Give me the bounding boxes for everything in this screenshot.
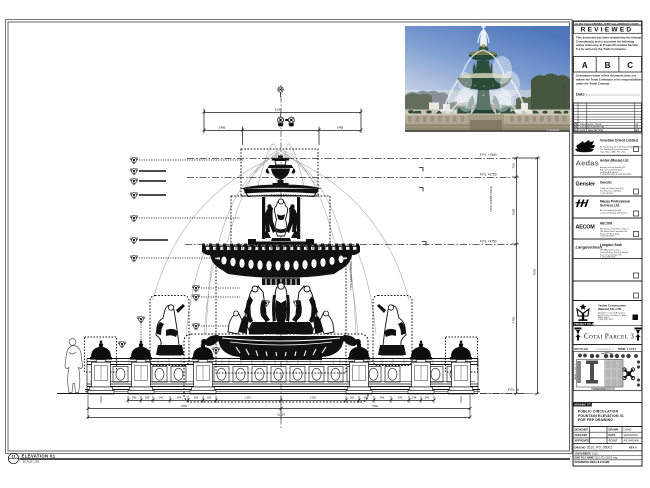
svg-text:3100: 3100 (275, 108, 282, 112)
svg-text:1302: 1302 (310, 396, 316, 400)
svg-text:240: 240 (132, 396, 137, 400)
svg-text:340: 340 (159, 396, 164, 400)
svg-text:AECOM: AECOM (600, 222, 612, 226)
svg-text:5110: 5110 (592, 451, 598, 455)
svg-text:296: 296 (364, 396, 369, 400)
svg-text:260: 260 (350, 396, 355, 400)
svg-text:1302: 1302 (245, 396, 251, 400)
svg-text:AECOM: AECOM (576, 225, 596, 231)
svg-text:364: 364 (177, 396, 182, 400)
svg-text:CAND: CAND (624, 427, 632, 431)
svg-text:T +853 2878 3839 F +853 2878: T +853 2878 3839 F +853 2878 3842 (600, 174, 631, 176)
svg-text:750: 750 (512, 163, 516, 168)
svg-text:C: C (627, 61, 633, 70)
svg-text:FIRST ISSUE: FIRST ISSUE (588, 124, 602, 126)
svg-text:F.P.L ±0: F.P.L ±0 (508, 388, 519, 392)
svg-text:COTAI PARCEL 3: COTAI PARCEL 3 (584, 333, 634, 341)
svg-text:COTAI PARCEL 3: COTAI PARCEL 3 (596, 348, 614, 351)
svg-text:© concorde: © concorde (546, 128, 560, 132)
svg-text:DATE: DATE (609, 433, 616, 437)
svg-text:1485: 1485 (337, 126, 344, 130)
svg-text:Langdon Seah: Langdon Seah (600, 243, 622, 247)
svg-text:(Macau) CO.,LTD.: (Macau) CO.,LTD. (598, 307, 622, 311)
svg-text:under the Trade Contract.: under the Trade Contract. (576, 81, 610, 85)
svg-text:TYPE 'FD05C' POWDER COATED: TYPE 'FD05C' POWDER COATED (349, 249, 353, 290)
svg-text:A: A (582, 61, 588, 70)
svg-text:Aedas (Macau) Ltd.: Aedas (Macau) Ltd. (600, 159, 629, 163)
svg-text:INIT: INIT (635, 130, 640, 132)
svg-text:Venetian Orient Limited: Venetian Orient Limited (600, 139, 638, 143)
svg-text:LangdonSeah: LangdonSeah (576, 245, 603, 250)
svg-text:KEY PLAN: KEY PLAN (575, 347, 588, 351)
svg-text:T 415.433.3700: T 415.433.3700 (600, 193, 613, 195)
svg-text:REV 0: REV 0 (629, 445, 637, 449)
svg-text:Gensler: Gensler (576, 182, 596, 188)
svg-text:JOB NUMBER: JOB NUMBER (575, 452, 591, 455)
svg-text:DRAWN: DRAWN (609, 427, 619, 431)
svg-text:7500: 7500 (533, 268, 537, 275)
svg-text:SCALE: SCALE (609, 439, 618, 443)
svg-text:248: 248 (412, 396, 417, 400)
svg-text:DWG FILE NAME 5110_PD_05001.dw: DWG FILE NAME 5110_PD_05001.dwg (575, 457, 619, 460)
svg-text:DESCRIPTION: DESCRIPTION (588, 130, 603, 132)
svg-text:Date :: Date : (576, 92, 587, 97)
svg-text:DESIGNED: DESIGNED (575, 427, 589, 431)
svg-text:1485: 1485 (219, 126, 226, 130)
svg-text:REFERENCE DWG FILE NAME: REFERENCE DWG FILE NAME (575, 461, 610, 464)
svg-text:12/04/2016: 12/04/2016 (624, 433, 638, 437)
svg-text:296: 296 (194, 396, 199, 400)
svg-text:DWG NO: DWG NO (575, 445, 586, 449)
svg-text:AS SHOWN: AS SHOWN (624, 439, 639, 443)
svg-text:F.P.L +7500: F.P.L +7500 (480, 153, 497, 157)
svg-text:240: 240 (425, 396, 430, 400)
svg-text:China Law Building 21/F, Macau: China Law Building 21/F, Macau (600, 212, 627, 214)
svg-text:Aedas: Aedas (576, 159, 600, 168)
svg-text:340: 340 (398, 396, 403, 400)
svg-text:B: B (605, 61, 611, 70)
svg-text:Gensler: Gensler (600, 181, 613, 185)
svg-text:REV: REV (574, 130, 579, 132)
svg-text:248: 248 (145, 396, 150, 400)
svg-text:REVIEWED: REVIEWED (581, 27, 634, 34)
svg-text:364: 364 (380, 396, 385, 400)
svg-text:2000: 2000 (512, 208, 516, 215)
svg-text:FOR FRP DRAWING: FOR FRP DRAWING (578, 418, 613, 422)
svg-text:F.P.L +4750: F.P.L +4750 (480, 240, 497, 244)
svg-text:T (853) 2875 2262: T (853) 2875 2262 (598, 319, 613, 321)
svg-text:Services Ltd.: Services Ltd. (600, 203, 620, 207)
svg-text:FOR APPROVAL: FOR APPROVAL (588, 126, 606, 129)
svg-text:4750: 4750 (512, 316, 516, 323)
svg-text:7562: 7562 (372, 404, 379, 408)
svg-text:5110_PD_05001: 5110_PD_05001 (587, 446, 612, 450)
svg-text:T 852 3922 9000: T 852 3922 9000 (600, 236, 614, 238)
svg-text:DATE: DATE (580, 129, 586, 132)
svg-text:CHECKED: CHECKED (575, 433, 588, 437)
svg-text:PANEL 1, LOT 2: PANEL 1, LOT 2 (618, 348, 637, 351)
svg-text:Taipa, Macau SAR, P.R. China: Taipa, Macau SAR, P.R. China (600, 150, 627, 153)
svg-text:260: 260 (207, 396, 212, 400)
svg-text:TYPE 'FD05B' FINISH: TYPE 'FD05B' FINISH (489, 186, 493, 212)
svg-text:-: - (597, 439, 598, 443)
svg-text:APPROVED: APPROVED (575, 439, 590, 443)
svg-text:ELEVATION 01: ELEVATION 01 (22, 454, 56, 459)
svg-text:SCALE 1:50: SCALE 1:50 (23, 460, 40, 464)
svg-text:7562: 7562 (181, 404, 188, 408)
svg-text:5.4 for action by the Trade Co: 5.4 for action by the Trade Contractor. (576, 47, 627, 51)
svg-text:DRAWING TITLE: DRAWING TITLE (574, 404, 594, 407)
svg-text:15124: 15124 (277, 413, 285, 417)
svg-text:-: - (597, 433, 598, 437)
svg-text:01: 01 (12, 454, 16, 458)
svg-text:F.P.L +6750: F.P.L +6750 (480, 173, 497, 177)
